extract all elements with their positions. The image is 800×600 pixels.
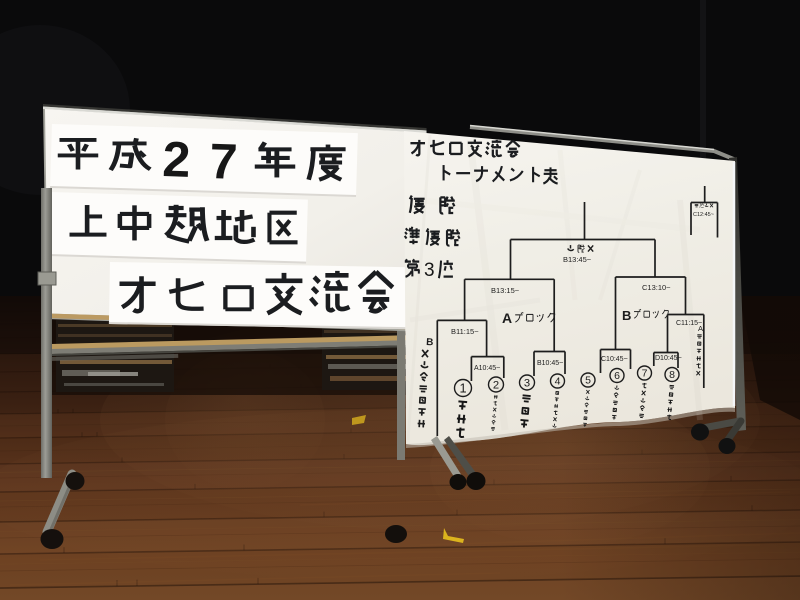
svg-text:A10:45~: A10:45~: [474, 365, 500, 372]
svg-text:A: A: [698, 324, 703, 333]
svg-text:3: 3: [424, 260, 435, 281]
svg-text:7: 7: [642, 368, 648, 380]
svg-text:D10:45~: D10:45~: [655, 355, 682, 362]
svg-text:3: 3: [524, 377, 530, 389]
svg-text:2: 2: [493, 379, 499, 391]
svg-text:1: 1: [459, 380, 466, 395]
svg-text:B13:15~: B13:15~: [491, 286, 520, 295]
svg-text:B10:45~: B10:45~: [537, 360, 563, 367]
svg-text:2: 2: [162, 131, 192, 188]
svg-text:8: 8: [669, 369, 675, 381]
svg-text:B11:15~: B11:15~: [451, 327, 479, 336]
svg-text:4: 4: [555, 376, 561, 388]
svg-text:B: B: [622, 308, 631, 323]
svg-text:C13:10~: C13:10~: [642, 283, 671, 292]
svg-text:B: B: [426, 337, 434, 348]
svg-text:5: 5: [585, 375, 591, 387]
svg-text:6: 6: [614, 370, 620, 382]
svg-text:C10:45~: C10:45~: [601, 356, 628, 363]
svg-text:B13:45~: B13:45~: [563, 255, 592, 264]
svg-text:7: 7: [209, 133, 239, 190]
svg-text:A: A: [502, 310, 512, 326]
svg-text:C12:45~: C12:45~: [693, 212, 714, 218]
